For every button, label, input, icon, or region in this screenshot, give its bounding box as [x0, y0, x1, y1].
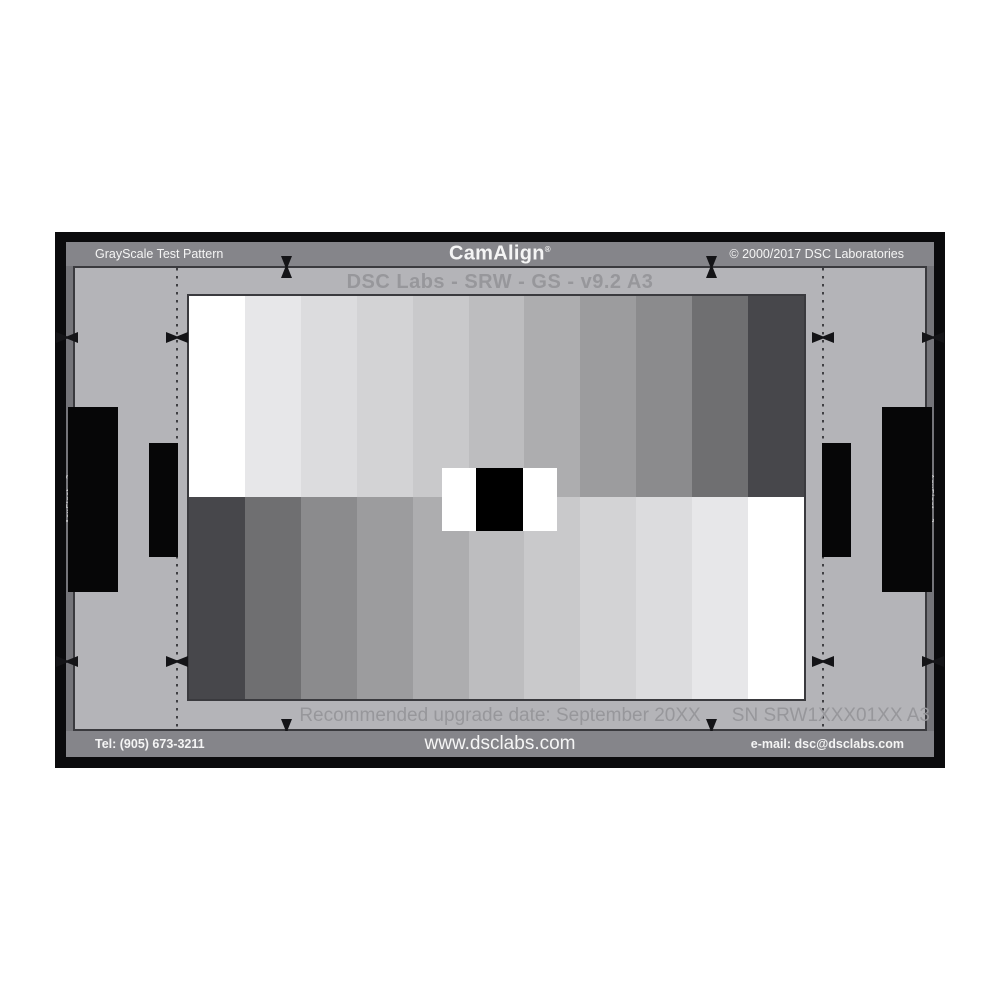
grayscale-step — [748, 497, 804, 699]
chart-subtitle: DSC Labs - SRW - GS - v9.2 A3 — [66, 271, 934, 294]
grayscale-step — [692, 497, 748, 699]
grayscale-step — [580, 296, 636, 497]
grayscale-step — [301, 296, 357, 497]
grayscale-step — [189, 497, 245, 699]
black-bar-right-outer — [882, 407, 932, 592]
header-band: GrayScale Test Pattern CamAlign® © 2000/… — [66, 242, 934, 266]
copyright-text: © 2000/2017 DSC Laboratories — [729, 247, 904, 261]
black-bar-right-inner — [822, 443, 851, 557]
chart-field: AcuFlect - 3 AcuFlect - 3 DSC Labs - SRW… — [66, 266, 934, 731]
grayscale-step — [636, 296, 692, 497]
grayscale-step — [245, 296, 301, 497]
grayscale-step — [636, 497, 692, 699]
grayscale-step — [524, 296, 580, 497]
grayscale-step — [469, 296, 525, 497]
grayscale-step — [748, 296, 804, 497]
center-reference-patch — [442, 468, 557, 531]
grayscale-step — [357, 497, 413, 699]
grayscale-step — [580, 497, 636, 699]
grayscale-step — [245, 497, 301, 699]
serial-number: SN SRW1XXX01XX A3 — [732, 705, 930, 727]
white-flank-left — [442, 468, 476, 531]
grayscale-step — [357, 296, 413, 497]
email-text: e-mail: dsc@dsclabs.com — [751, 737, 904, 751]
grayscale-step — [189, 296, 245, 497]
center-black-square — [476, 468, 523, 531]
grayscale-step — [301, 497, 357, 699]
white-flank-right — [523, 468, 557, 531]
grayscale-step — [413, 296, 469, 497]
steps-top-row — [189, 296, 804, 497]
grayscale-step — [692, 296, 748, 497]
grayscale-test-chart: GrayScale Test Pattern CamAlign® © 2000/… — [55, 232, 945, 768]
black-bar-left-outer — [68, 407, 118, 592]
black-bar-left-inner — [149, 443, 178, 557]
footer-band: Tel: (905) 673-3211 www.dsclabs.com e-ma… — [66, 731, 934, 757]
registered-mark: ® — [545, 245, 551, 254]
